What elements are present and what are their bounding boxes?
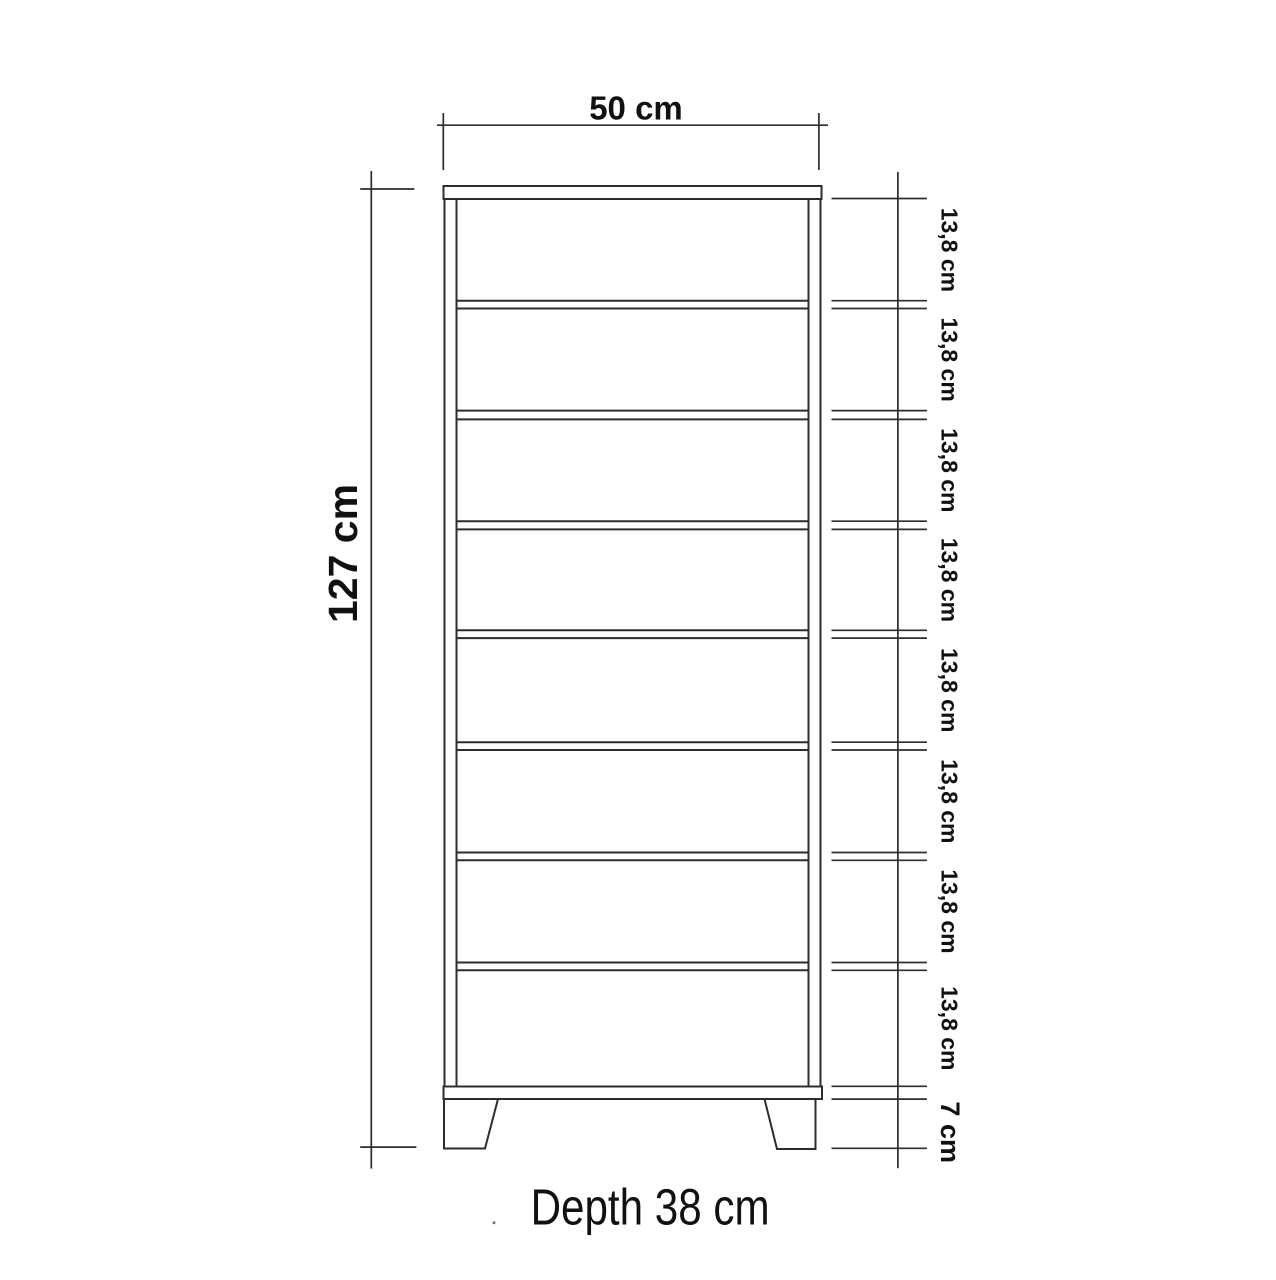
svg-text:127 cm: 127 cm [320, 484, 366, 623]
svg-text:13,8 cm: 13,8 cm [937, 759, 963, 843]
svg-text:13,8 cm: 13,8 cm [937, 208, 963, 292]
svg-text:13,8 cm: 13,8 cm [937, 428, 963, 512]
svg-text:13,8 cm: 13,8 cm [937, 869, 963, 953]
svg-text:13,8 cm: 13,8 cm [937, 538, 963, 622]
svg-text:13,8 cm: 13,8 cm [937, 317, 963, 401]
svg-text:50 cm: 50 cm [589, 89, 683, 126]
svg-text:Depth 38 cm: Depth 38 cm [531, 1179, 770, 1236]
svg-text:7 cm: 7 cm [935, 1101, 965, 1163]
svg-text:13,8 cm: 13,8 cm [937, 648, 963, 732]
svg-text:13,8 cm: 13,8 cm [937, 986, 963, 1070]
